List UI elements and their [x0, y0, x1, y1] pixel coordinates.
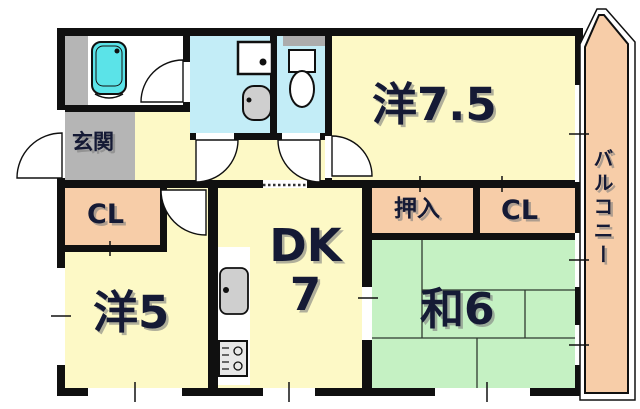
- closet-right-label: CL: [501, 197, 538, 224]
- toilet-shelf: [283, 36, 325, 46]
- window-right-yo75: [575, 85, 583, 182]
- western-5-label: 洋5: [93, 290, 169, 335]
- wall-oshiire-cl: [473, 188, 480, 233]
- door-gap-yo75: [325, 136, 332, 178]
- wall-corridor-dk: [208, 188, 218, 388]
- door-gap-bathroom: [183, 62, 190, 102]
- window-bottom-washitsu: [435, 388, 530, 396]
- wall-yo75-bottom: [325, 180, 575, 188]
- wall-hall-south-1: [57, 180, 263, 188]
- door-gap-dk-entry: [263, 180, 307, 188]
- toilet-room: [277, 36, 332, 133]
- bathroom: [88, 36, 183, 105]
- washroom: [190, 36, 270, 133]
- balcony-label: バルコニー: [592, 148, 612, 268]
- window-right-washitsu-2: [575, 325, 583, 365]
- dk-text: DK: [269, 219, 341, 272]
- wall-washroom-toilet: [270, 36, 277, 133]
- wall-cl-left-right: [160, 188, 167, 252]
- entrance-door-arc: [17, 133, 62, 178]
- window-left: [57, 268, 65, 365]
- japanese-6-label: 和6: [420, 288, 495, 332]
- door-gap-washroom: [196, 133, 234, 140]
- western-7-5-label: 洋7.5: [372, 82, 497, 127]
- window-bottom-dk: [263, 388, 315, 396]
- closet-left-label: CL: [87, 201, 124, 228]
- genkan-label: 玄関: [72, 132, 114, 153]
- wall-cl-left-bottom: [57, 245, 163, 252]
- oshiire-label: 押入: [394, 198, 440, 221]
- dk-size-text: 7: [290, 268, 321, 321]
- duct-space: [65, 36, 88, 105]
- door-gap-toilet: [282, 133, 320, 140]
- window-right-washitsu-1: [575, 233, 583, 287]
- dk-label: DK 7: [243, 222, 368, 319]
- floor-plan: 玄関 洋7.5 バルコニー CL 押入 CL 洋5 DK 7 和6: [0, 0, 640, 409]
- wall-oshiire-bottom: [362, 233, 575, 240]
- wall-left-upper: [57, 28, 65, 110]
- wall-bath-bottom: [65, 105, 190, 112]
- wall-top: [57, 28, 583, 36]
- window-bottom-yo5: [88, 388, 182, 396]
- wall-hall-south-2: [307, 180, 325, 188]
